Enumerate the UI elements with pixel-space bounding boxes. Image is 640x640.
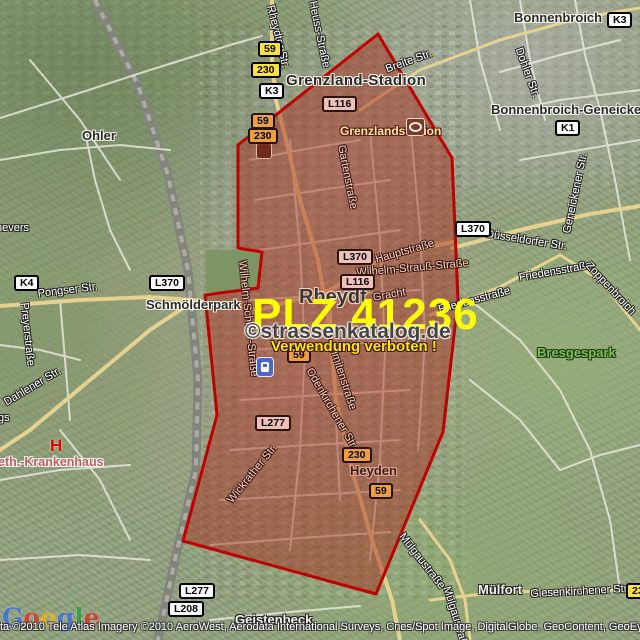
road-shield-230: 230 (251, 62, 281, 78)
label-layer: Rheydt PLZ 41236 ©strassenkatalog.de Ver… (0, 0, 640, 640)
poi-icon (256, 143, 272, 159)
map-attribution: ta ©2010 Tele Atlas Imagery ©2010 AeroWe… (0, 621, 640, 633)
watermark-warning: Verwendung verboten ! (271, 338, 437, 355)
place-label: Grenzland-Stadion (286, 72, 426, 89)
place-label: Schmölderpark (146, 297, 241, 312)
street-label: Mülgaustraße (397, 531, 448, 591)
road-shield-K4: K4 (14, 275, 39, 291)
road-shield-L370: L370 (149, 275, 185, 291)
street-label: Heuss-Straße (306, 0, 332, 69)
place-label: Mülfort (478, 582, 522, 597)
road-shield-L370: L370 (337, 249, 373, 265)
street-label: Wickrather Str. (225, 442, 280, 506)
street-label: Gartenstraße (335, 144, 359, 210)
street-label: Friedensstraße (518, 259, 593, 284)
place-label: Heyden (350, 463, 397, 478)
hospital-icon: H (50, 436, 62, 456)
street-label: Dahlener Str. (2, 365, 63, 408)
place-label: Bonnenbroich (514, 10, 602, 25)
road-shield-L116: L116 (322, 96, 357, 112)
street-label: gs (0, 412, 10, 424)
road-shield-L277: L277 (255, 415, 291, 431)
street-label: Pongser Str. (37, 281, 99, 300)
road-shield-L208: L208 (168, 601, 204, 617)
street-label: nevers (0, 222, 29, 234)
road-shield-59: 59 (251, 113, 275, 129)
street-label: Geneickener Str. (561, 152, 590, 235)
map-viewport[interactable]: Rheydt PLZ 41236 ©strassenkatalog.de Ver… (0, 0, 640, 640)
road-shield-230: 230 (626, 583, 640, 599)
place-label: Grenzlandstadion (340, 124, 441, 138)
road-shield-K3: K3 (259, 83, 284, 99)
street-label: Zoppenbroich (583, 260, 638, 317)
road-shield-59: 59 (369, 483, 393, 499)
place-label: Ohler (82, 128, 116, 143)
road-shield-230: 230 (342, 447, 372, 463)
train-station-icon (256, 357, 274, 377)
street-label: Rheydter Str. (264, 4, 291, 69)
road-shield-K3: K3 (607, 12, 632, 28)
road-shield-59: 59 (258, 41, 282, 57)
stadium-icon (406, 118, 425, 136)
street-label: Düsseldorfer Str. (485, 228, 568, 253)
road-shield-L370: L370 (455, 221, 491, 237)
street-label: Dohler Str. (513, 46, 542, 99)
place-label: Bresgespark (537, 345, 616, 360)
place-label: eth.-Krankenhaus (0, 455, 104, 469)
place-label: Bonnenbroich-Geneicken (491, 102, 640, 117)
street-label: Preyerstraße (18, 302, 37, 366)
street-label: Giesenkirchener Str. (530, 583, 630, 600)
road-shield-L116: L116 (340, 274, 375, 290)
road-shield-L277: L277 (179, 583, 215, 599)
road-shield-230: 230 (248, 128, 278, 144)
road-shield-K1: K1 (555, 120, 580, 136)
